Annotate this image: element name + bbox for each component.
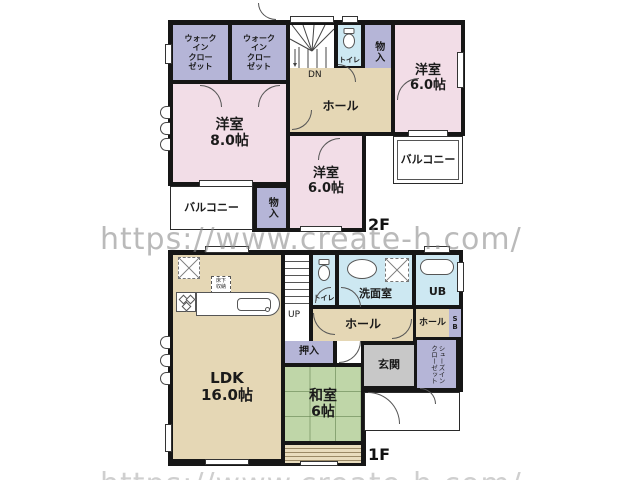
fridge-space-icon [178,257,200,279]
window-mark [165,424,172,452]
room-1f-entrance: 玄関 [364,345,414,386]
stairs-1f-landing: UP [285,307,309,341]
floor-label-2f: 2F [368,215,390,234]
label-1f-washroom: 洗面室 [359,288,392,301]
label-2f-toilet: トイレ [339,56,360,64]
room-1f-shoes-in-closet: シューズイン クローゼット [417,340,456,388]
balcony-inner-line [397,140,459,180]
window-bump [160,336,170,349]
window-mark [205,459,249,465]
window-mark [290,16,334,23]
window-mark [205,246,249,253]
label-2f-walkin-closet-2: ウォーク イン クロー ゼット [243,34,275,71]
window-bump [160,354,170,367]
floor-label-1f: 1F [368,445,390,464]
room-1f-japanese-room: 和室 6帖 [285,367,361,441]
room-1f-hall-east: ホール [416,309,449,337]
stove-icon [176,292,196,312]
label-1f-hall: ホール [345,318,381,332]
floor-plan-canvas: バルコニー バルコニー ウォーク イン クロー ゼット ウォーク イン クロー … [0,0,640,480]
toilet-icon [342,28,356,50]
label-2f-hall: ホール [322,100,358,114]
sink-drain [265,307,270,312]
window-bump [160,122,170,135]
label-1f-shoes-in-closet: シューズイン クローゼット [429,345,444,384]
room-1f-shoe-box: S B [449,309,461,337]
room-2f-balcony-southwest: バルコニー [170,186,253,230]
room-1f-unit-bath: UB [416,255,459,305]
label-2f-storage-top: 物入 [372,41,384,63]
room-2f-storage-south: 物入 [257,188,286,228]
window-mark [342,16,358,23]
door-arc [258,3,276,20]
room-2f-balcony-east: バルコニー [393,136,463,184]
kitchen-counter [196,292,280,316]
window-mark [199,180,253,187]
window-mark [300,461,338,466]
label-2f-storage-south: 物入 [266,197,278,219]
sink-icon [347,259,377,279]
toilet-icon [317,259,331,283]
window-mark [457,52,464,88]
label-1f-hall-east: ホール [419,318,446,328]
room-2f-western-6-ne: 洋室 6.0帖 [395,25,461,132]
label-2f-balcony-southwest: バルコニー [184,202,239,215]
washer-space-icon [385,258,409,282]
watermark: https://www.create-h.com/ [100,467,570,480]
label-1f-japanese-room: 和室 6帖 [309,388,337,420]
window-mark [300,226,342,232]
label-1f-ldk: LDK 16.0帖 [173,370,281,405]
stairs-down-icon [290,25,334,68]
room-2f-walkin-closet-1: ウォーク イン クロー ゼット [173,25,228,80]
label-1f-entrance: 玄関 [378,359,400,372]
label-2f-western-6-s: 洋室 6.0帖 [308,167,344,197]
label-2f-walkin-closet-1: ウォーク イン クロー ゼット [185,34,217,71]
label-2f-stairs-dn: DN [308,70,322,80]
room-2f-walkin-closet-2: ウォーク イン クロー ゼット [232,25,286,80]
room-1f-oshiire-closet: 押入 [285,341,333,363]
window-mark [424,246,450,253]
window-bump [160,138,170,151]
window-mark [408,130,448,137]
label-1f-oshiire: 押入 [299,346,319,358]
room-1f-ldk: LDK 16.0帖 床下 収納 [173,255,281,459]
label-1f-shoe-box: S B [452,315,457,332]
window-bump [160,106,170,119]
bathtub-icon [420,259,454,275]
label-2f-western-8: 洋室 8.0帖 [210,117,249,149]
window-mark [165,44,172,64]
stairs-2f [290,25,334,68]
stairs-1f [285,255,309,307]
label-underfloor-storage: 床下 収納 [216,279,226,291]
window-bump [160,372,170,385]
label-1f-unit-bath: UB [429,286,446,299]
label-stairs-up: UP [288,310,300,320]
window-mark [457,262,464,292]
room-2f-toilet: トイレ [338,25,361,66]
